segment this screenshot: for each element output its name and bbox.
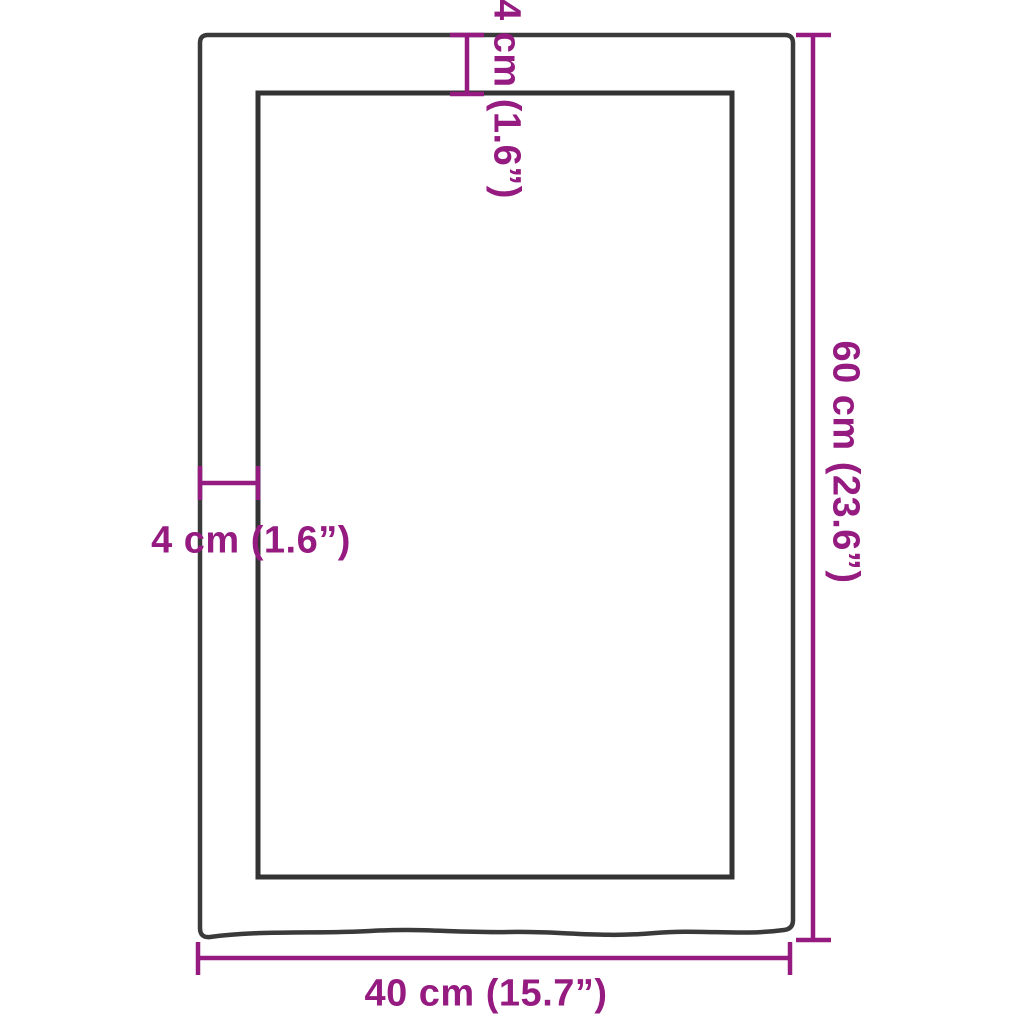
panel-inner-edge bbox=[258, 93, 732, 877]
width-dimension bbox=[198, 942, 790, 975]
left-thickness-dimension bbox=[200, 466, 258, 500]
height-label: 60 cm (23.6”) bbox=[824, 340, 867, 583]
dimension-diagram: 4 cm (1.6”) 4 cm (1.6”) 60 cm (23.6”) 40… bbox=[0, 0, 1024, 1024]
top-thickness-dimension bbox=[450, 35, 484, 94]
top-thickness-label: 4 cm (1.6”) bbox=[485, 0, 528, 199]
left-thickness-label: 4 cm (1.6”) bbox=[151, 520, 351, 563]
width-label: 40 cm (15.7”) bbox=[364, 973, 607, 1016]
